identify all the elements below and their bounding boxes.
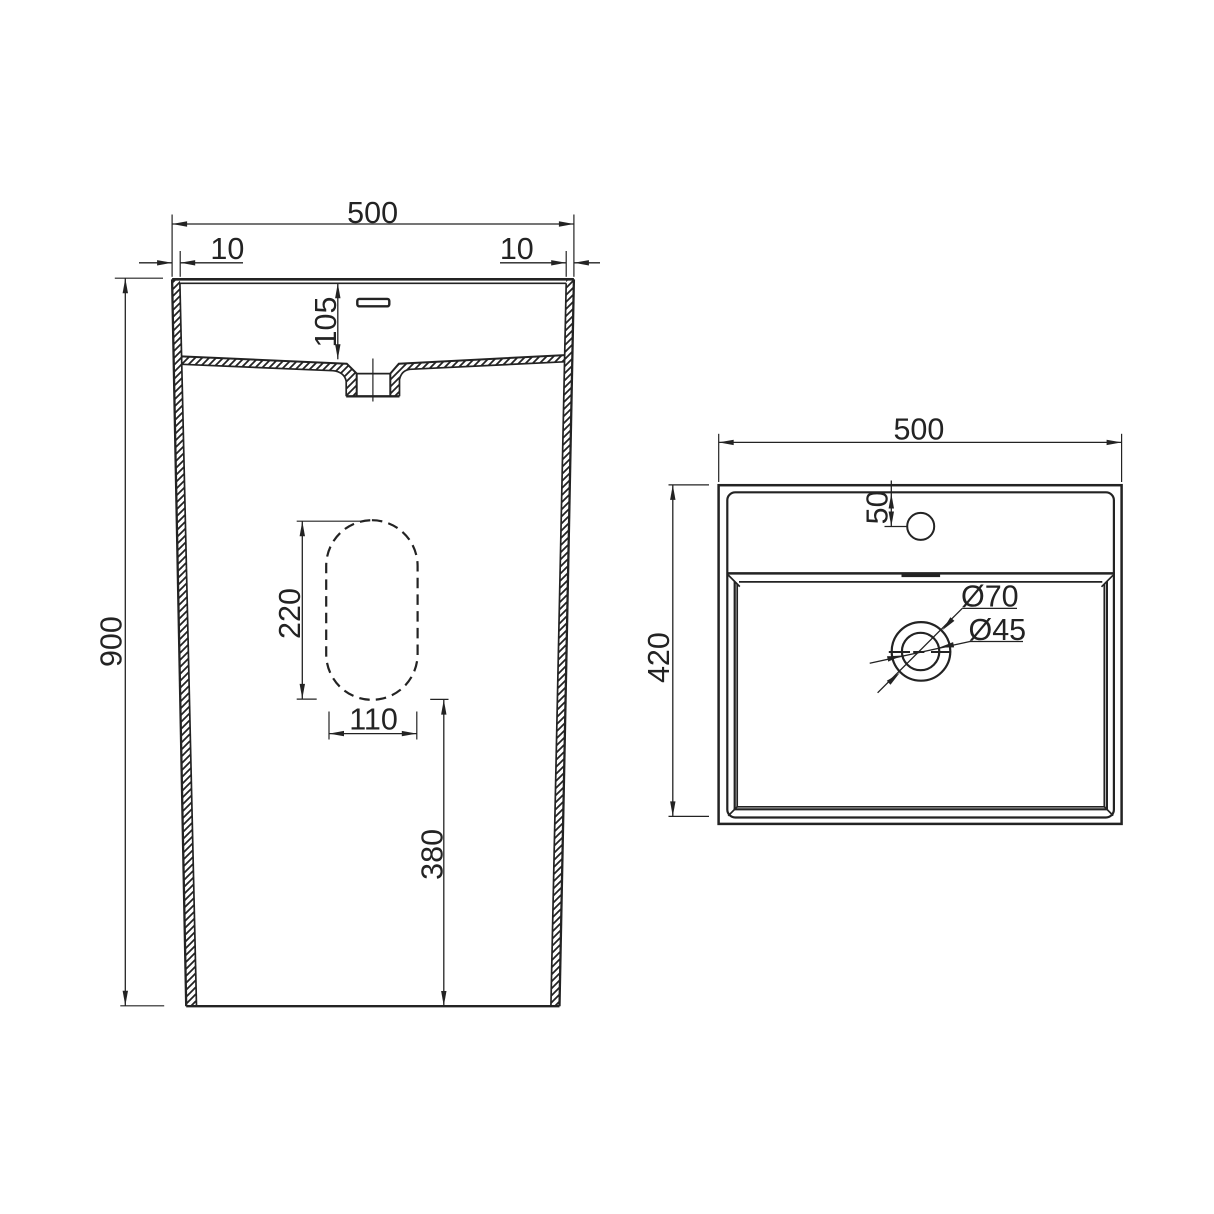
svg-text:380: 380 xyxy=(415,829,449,880)
svg-text:Ø70: Ø70 xyxy=(961,579,1019,613)
svg-text:420: 420 xyxy=(642,632,676,683)
svg-text:50: 50 xyxy=(861,490,895,524)
svg-text:220: 220 xyxy=(273,588,307,639)
svg-text:Ø45: Ø45 xyxy=(968,613,1026,647)
svg-text:10: 10 xyxy=(210,232,244,266)
svg-text:10: 10 xyxy=(500,232,534,266)
svg-text:900: 900 xyxy=(95,616,129,667)
svg-text:500: 500 xyxy=(893,412,944,446)
svg-text:110: 110 xyxy=(349,702,398,736)
svg-text:500: 500 xyxy=(347,196,398,230)
svg-text:105: 105 xyxy=(309,297,343,348)
